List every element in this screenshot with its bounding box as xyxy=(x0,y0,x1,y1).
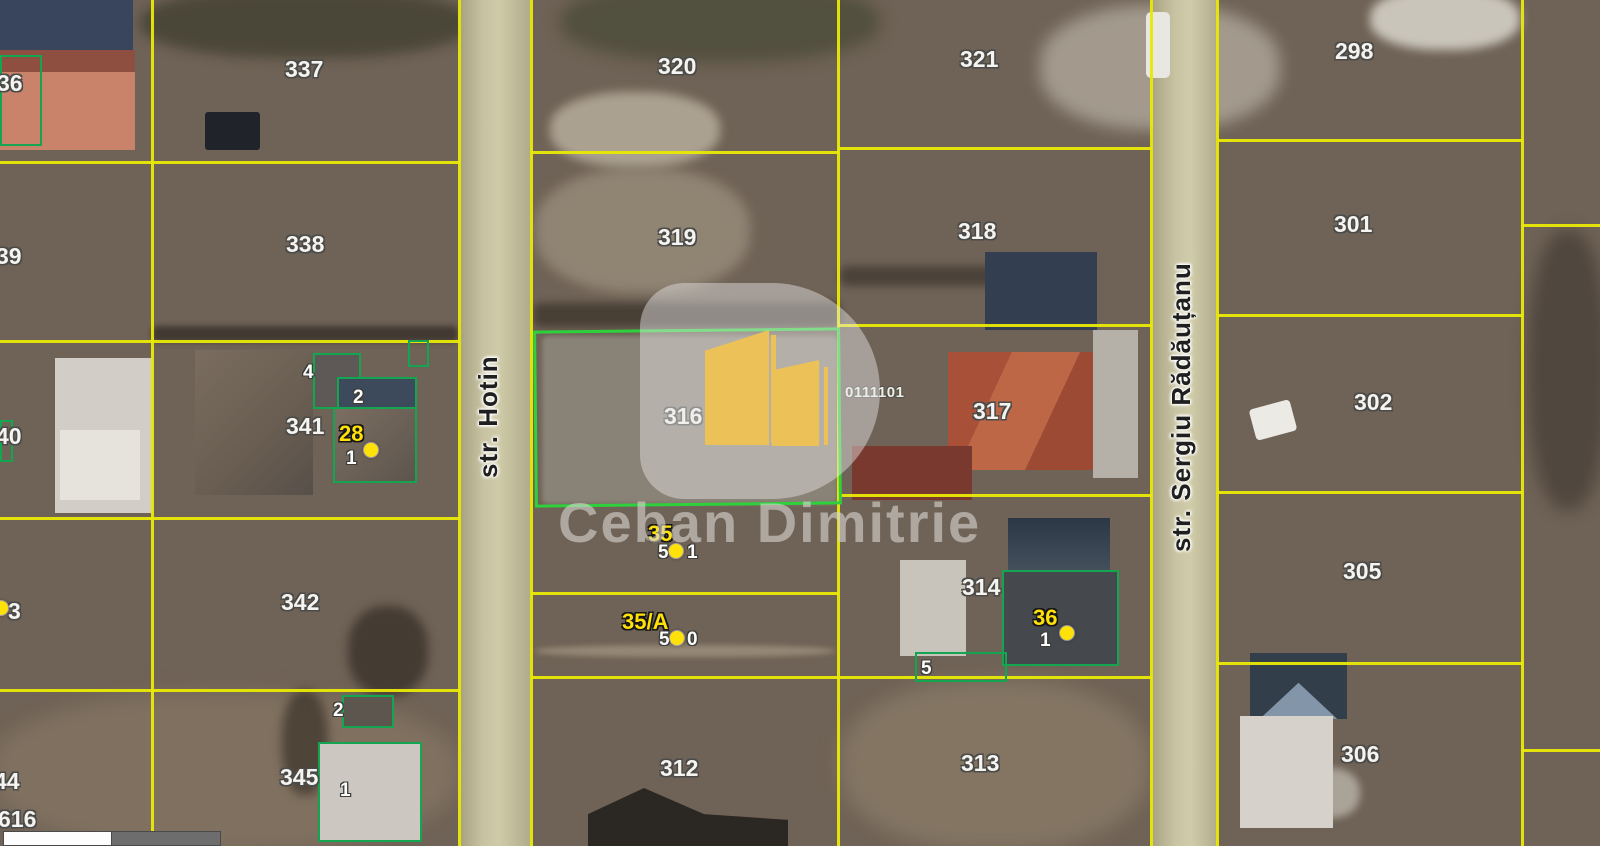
scale-bar-segment-light xyxy=(3,831,112,846)
building-outline-345-annex xyxy=(342,695,394,728)
marker-36-house: 1 xyxy=(1040,630,1051,652)
building-306-body xyxy=(1240,716,1333,828)
hedge-shadow xyxy=(533,303,841,327)
cadastral-map-canvas[interactable]: str. Hotin str. Sergiu Rădăuțanu 36 337 … xyxy=(0,0,1600,846)
marker-35-digit-right: 1 xyxy=(687,542,698,564)
building-317-dark-roof xyxy=(985,252,1097,330)
building-outline-336 xyxy=(0,55,42,146)
parcel-line xyxy=(1521,749,1600,752)
parcel-line xyxy=(838,147,1152,150)
marker-dot-343[interactable] xyxy=(0,601,8,615)
parcel-label-320: 320 xyxy=(658,53,696,80)
vehicle-white-car xyxy=(1249,399,1298,441)
parcel-label-339: 39 xyxy=(0,243,22,270)
parcel-label-344: 44 xyxy=(0,768,20,795)
scale-bar xyxy=(3,831,221,846)
building-bottom-dark xyxy=(588,788,788,846)
parcel-line xyxy=(0,340,460,343)
tree-shadow xyxy=(348,606,428,696)
roof-face xyxy=(1260,683,1338,719)
car xyxy=(205,112,260,150)
parcel-label-336: 36 xyxy=(0,70,23,97)
parcel-label-342: 342 xyxy=(281,589,319,616)
building-outline-36-house xyxy=(1002,570,1119,666)
vegetation-patch xyxy=(1528,230,1600,510)
marker-36-number[interactable]: 36 xyxy=(1033,605,1057,631)
parcel-label-313: 313 xyxy=(961,750,999,777)
parcel-label-337: 337 xyxy=(285,56,323,83)
debris-patch xyxy=(1370,0,1520,50)
parcel-line xyxy=(1521,224,1600,227)
rubble-patch xyxy=(535,168,750,293)
parcel-line xyxy=(151,0,154,846)
marker-dot-36[interactable] xyxy=(1060,626,1074,640)
building-outline-341-roof xyxy=(337,377,417,411)
scale-bar-segment-dark xyxy=(112,831,221,846)
parcel-label-338: 338 xyxy=(286,231,324,258)
parcel-label-343: 3 xyxy=(8,598,21,625)
parcel-label-301: 301 xyxy=(1334,211,1372,238)
building-36-gable-roof xyxy=(1008,518,1110,576)
parcel-line xyxy=(1216,0,1219,846)
parcel-label-317: 317 xyxy=(973,398,1011,425)
building-317-maroon xyxy=(852,446,972,500)
building-outline-345-house xyxy=(318,742,422,842)
parcel-line xyxy=(530,0,533,846)
marker-dot-28[interactable] xyxy=(364,443,378,457)
parcel-line xyxy=(0,517,460,520)
marker-28-number[interactable]: 28 xyxy=(339,421,363,447)
parcel-label-298: 298 xyxy=(1335,38,1373,65)
vegetation-patch xyxy=(560,0,880,62)
marker-35a-digit-left: 5 xyxy=(659,629,670,651)
parcel-label-314: 314 xyxy=(962,574,1000,601)
parcel-line xyxy=(1218,139,1523,142)
building-outline-341-small xyxy=(408,340,429,367)
parcel-line xyxy=(1150,0,1153,846)
cadastral-code-label: 0111101 xyxy=(845,384,904,401)
parcel-label-312: 312 xyxy=(660,755,698,782)
marker-28-house: 1 xyxy=(346,448,357,470)
parcel-line xyxy=(531,151,839,154)
building-label-1-345: 1 xyxy=(340,780,351,802)
building-317-gray xyxy=(1093,330,1138,478)
parcel-line xyxy=(1218,662,1523,665)
parcel-label-340: 40 xyxy=(0,423,22,450)
building-label-2-345: 2 xyxy=(333,700,344,722)
parcel-label-318: 318 xyxy=(958,218,996,245)
building-label-5-314: 5 xyxy=(921,658,932,680)
parcel-label-302: 302 xyxy=(1354,389,1392,416)
parcel-label-345: 345 xyxy=(280,764,318,791)
marker-dot-35[interactable] xyxy=(669,544,683,558)
rubble-patch xyxy=(550,92,720,167)
parcel-line xyxy=(458,0,461,846)
building-label-2-341: 2 xyxy=(353,387,364,409)
parcel-line xyxy=(838,324,1152,327)
building-314-barn xyxy=(900,560,966,656)
parcel-line xyxy=(0,161,460,164)
parcel-line xyxy=(1521,0,1524,846)
parcel-label-341: 341 xyxy=(286,413,324,440)
parcel-label-306: 306 xyxy=(1341,741,1379,768)
street-label-hotin: str. Hotin xyxy=(473,355,504,478)
parcel-label-305: 305 xyxy=(1343,558,1381,585)
parcel-line xyxy=(1218,314,1523,317)
parcel-label-319: 319 xyxy=(658,224,696,251)
marker-35-digit-left: 5 xyxy=(658,542,669,564)
vegetation-patch xyxy=(140,0,470,58)
parcel-line xyxy=(531,592,839,595)
street-label-sergiu-radautanu: str. Sergiu Rădăuțanu xyxy=(1166,262,1197,552)
parcel-line xyxy=(0,689,460,692)
building-340-annex xyxy=(60,430,140,500)
marker-dot-35a[interactable] xyxy=(670,631,684,645)
parcel-line xyxy=(531,676,1152,679)
dirt-path xyxy=(535,645,835,657)
parcel-label-316: 316 xyxy=(664,403,702,430)
parcel-line xyxy=(1218,491,1523,494)
parcel-line xyxy=(838,494,1152,497)
parcel-label-616: 616 xyxy=(0,806,36,833)
marker-35a-digit-right: 0 xyxy=(687,629,698,651)
parcel-label-321: 321 xyxy=(960,46,998,73)
building-label-4: 4 xyxy=(303,362,314,384)
building-roof xyxy=(0,0,133,52)
